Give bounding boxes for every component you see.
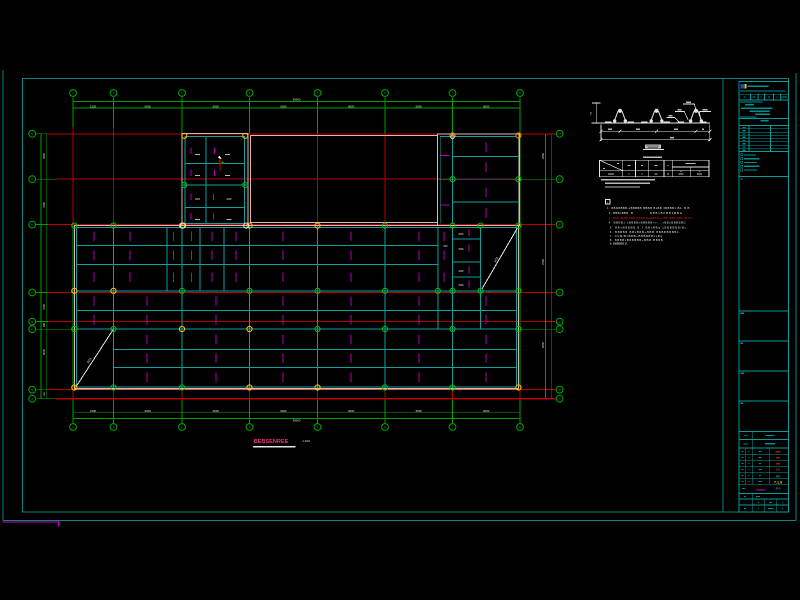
svg-text:6000: 6000	[42, 349, 46, 355]
svg-text:6000: 6000	[483, 409, 490, 413]
svg-text:F: F	[31, 223, 33, 227]
svg-text:Ab: Ab	[775, 474, 780, 478]
svg-text:6000: 6000	[416, 409, 423, 413]
svg-text:2. BBBxBBB .B.: 2. BBBxBBB .B.	[609, 211, 634, 215]
svg-text:6000: 6000	[541, 341, 545, 348]
svg-text:BBBxBPBB1BBG: BBBxBPBB1BBG	[650, 211, 682, 215]
svg-text:6000: 6000	[348, 409, 355, 413]
svg-text:BEBSENREE: BEBSENREE	[254, 439, 289, 445]
svg-text:6000: 6000	[280, 105, 287, 109]
svg-text:H: H	[31, 132, 33, 136]
svg-text:6000: 6000	[145, 105, 152, 109]
svg-text:7000: 7000	[541, 258, 545, 265]
svg-text:A: A	[559, 397, 561, 401]
svg-text:1500: 1500	[90, 409, 97, 413]
svg-text:A: A	[31, 397, 33, 401]
svg-text:4. BBBB1 xBBBBxBBBBB+x... xBBx: 4. BBBB1 xBBBBxBBBBB+x... xBBxBBBBBG	[609, 221, 686, 225]
svg-text:B: B	[559, 388, 561, 392]
svg-text:B: B	[31, 388, 33, 392]
svg-text:7000: 7000	[42, 304, 46, 310]
svg-text:6000: 6000	[213, 105, 220, 109]
svg-text:4500: 4500	[42, 153, 46, 159]
svg-text:7.1.8: 7.1.8	[774, 480, 782, 484]
svg-text:6000: 6000	[213, 409, 220, 413]
svg-text:7000: 7000	[42, 202, 46, 208]
svg-text:H: H	[559, 132, 561, 136]
svg-text:6000: 6000	[280, 409, 287, 413]
svg-text:39000: 39000	[293, 97, 301, 101]
svg-text:1500: 1500	[90, 105, 97, 109]
svg-text:9. BBBBBB.B.: 9. BBBBBB.B.	[610, 242, 628, 246]
svg-text:6000: 6000	[145, 409, 152, 413]
svg-text:3. BBB+BBB BBB BBBB BxBBBB x+B: 3. BBB+BBB BBB BBBB BxBBBB x+BB BBB BBB+…	[609, 216, 693, 220]
svg-text:1:100: 1:100	[302, 439, 310, 443]
svg-text:6000: 6000	[348, 105, 355, 109]
svg-text:BBBBB: BBBBB	[756, 488, 765, 492]
svg-text:900: 900	[43, 322, 46, 327]
svg-text:E: E	[31, 291, 33, 295]
svg-text:A.a: A.a	[775, 487, 781, 491]
svg-text:6000: 6000	[483, 105, 490, 109]
svg-text:5. BBxBBBBB.B.7 BBxBBq 1BBBBBB: 5. BBxBBBBB.B.7 BBxBBq 1BBBBBB/Bx.	[610, 225, 688, 229]
svg-text:Ps: Ps	[776, 468, 780, 472]
svg-text:4500: 4500	[541, 152, 545, 159]
svg-text:E: E	[559, 291, 561, 295]
svg-text:F: F	[559, 223, 561, 227]
svg-text:1. BBNBBBB-xBBBBB BBBB BxBB 3B: 1. BBNBBBB-xBBBBB BBBB BxBB 3BBBB1 Bb. B…	[607, 206, 690, 210]
svg-text:39000: 39000	[293, 419, 301, 423]
svg-text:6000: 6000	[416, 105, 423, 109]
